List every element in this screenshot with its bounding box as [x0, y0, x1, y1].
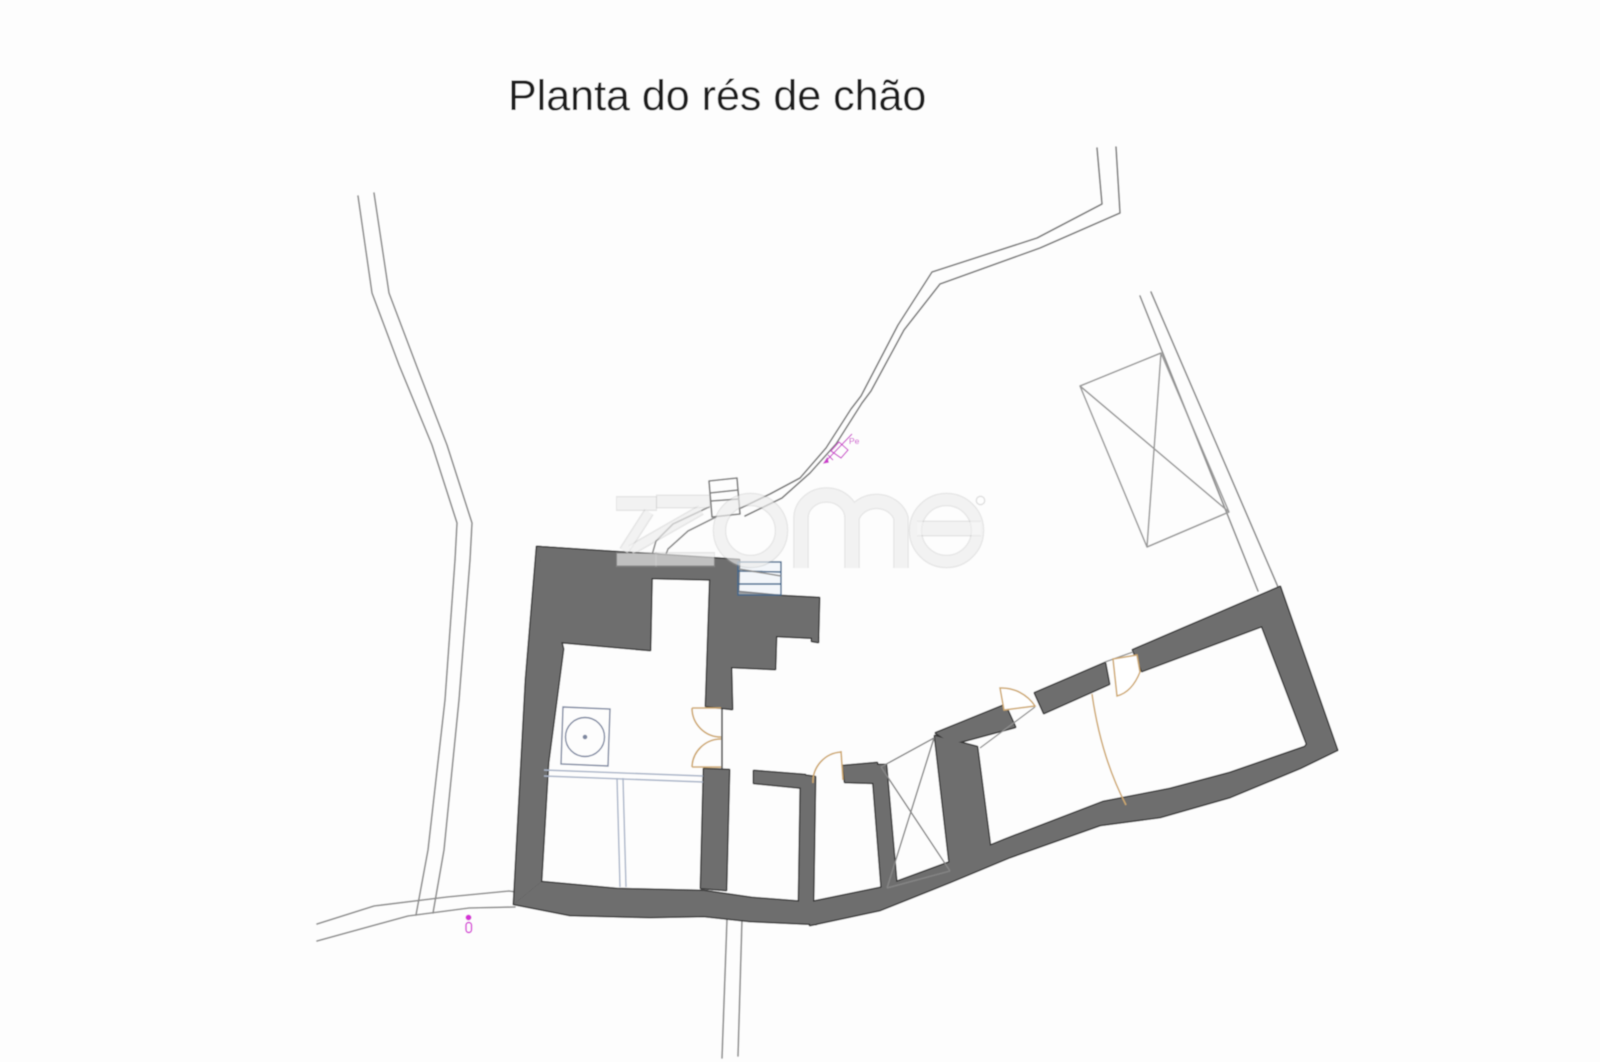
svg-text:Planta do rés de chão: Planta do rés de chão: [508, 72, 926, 120]
svg-text:Pe: Pe: [849, 436, 860, 446]
